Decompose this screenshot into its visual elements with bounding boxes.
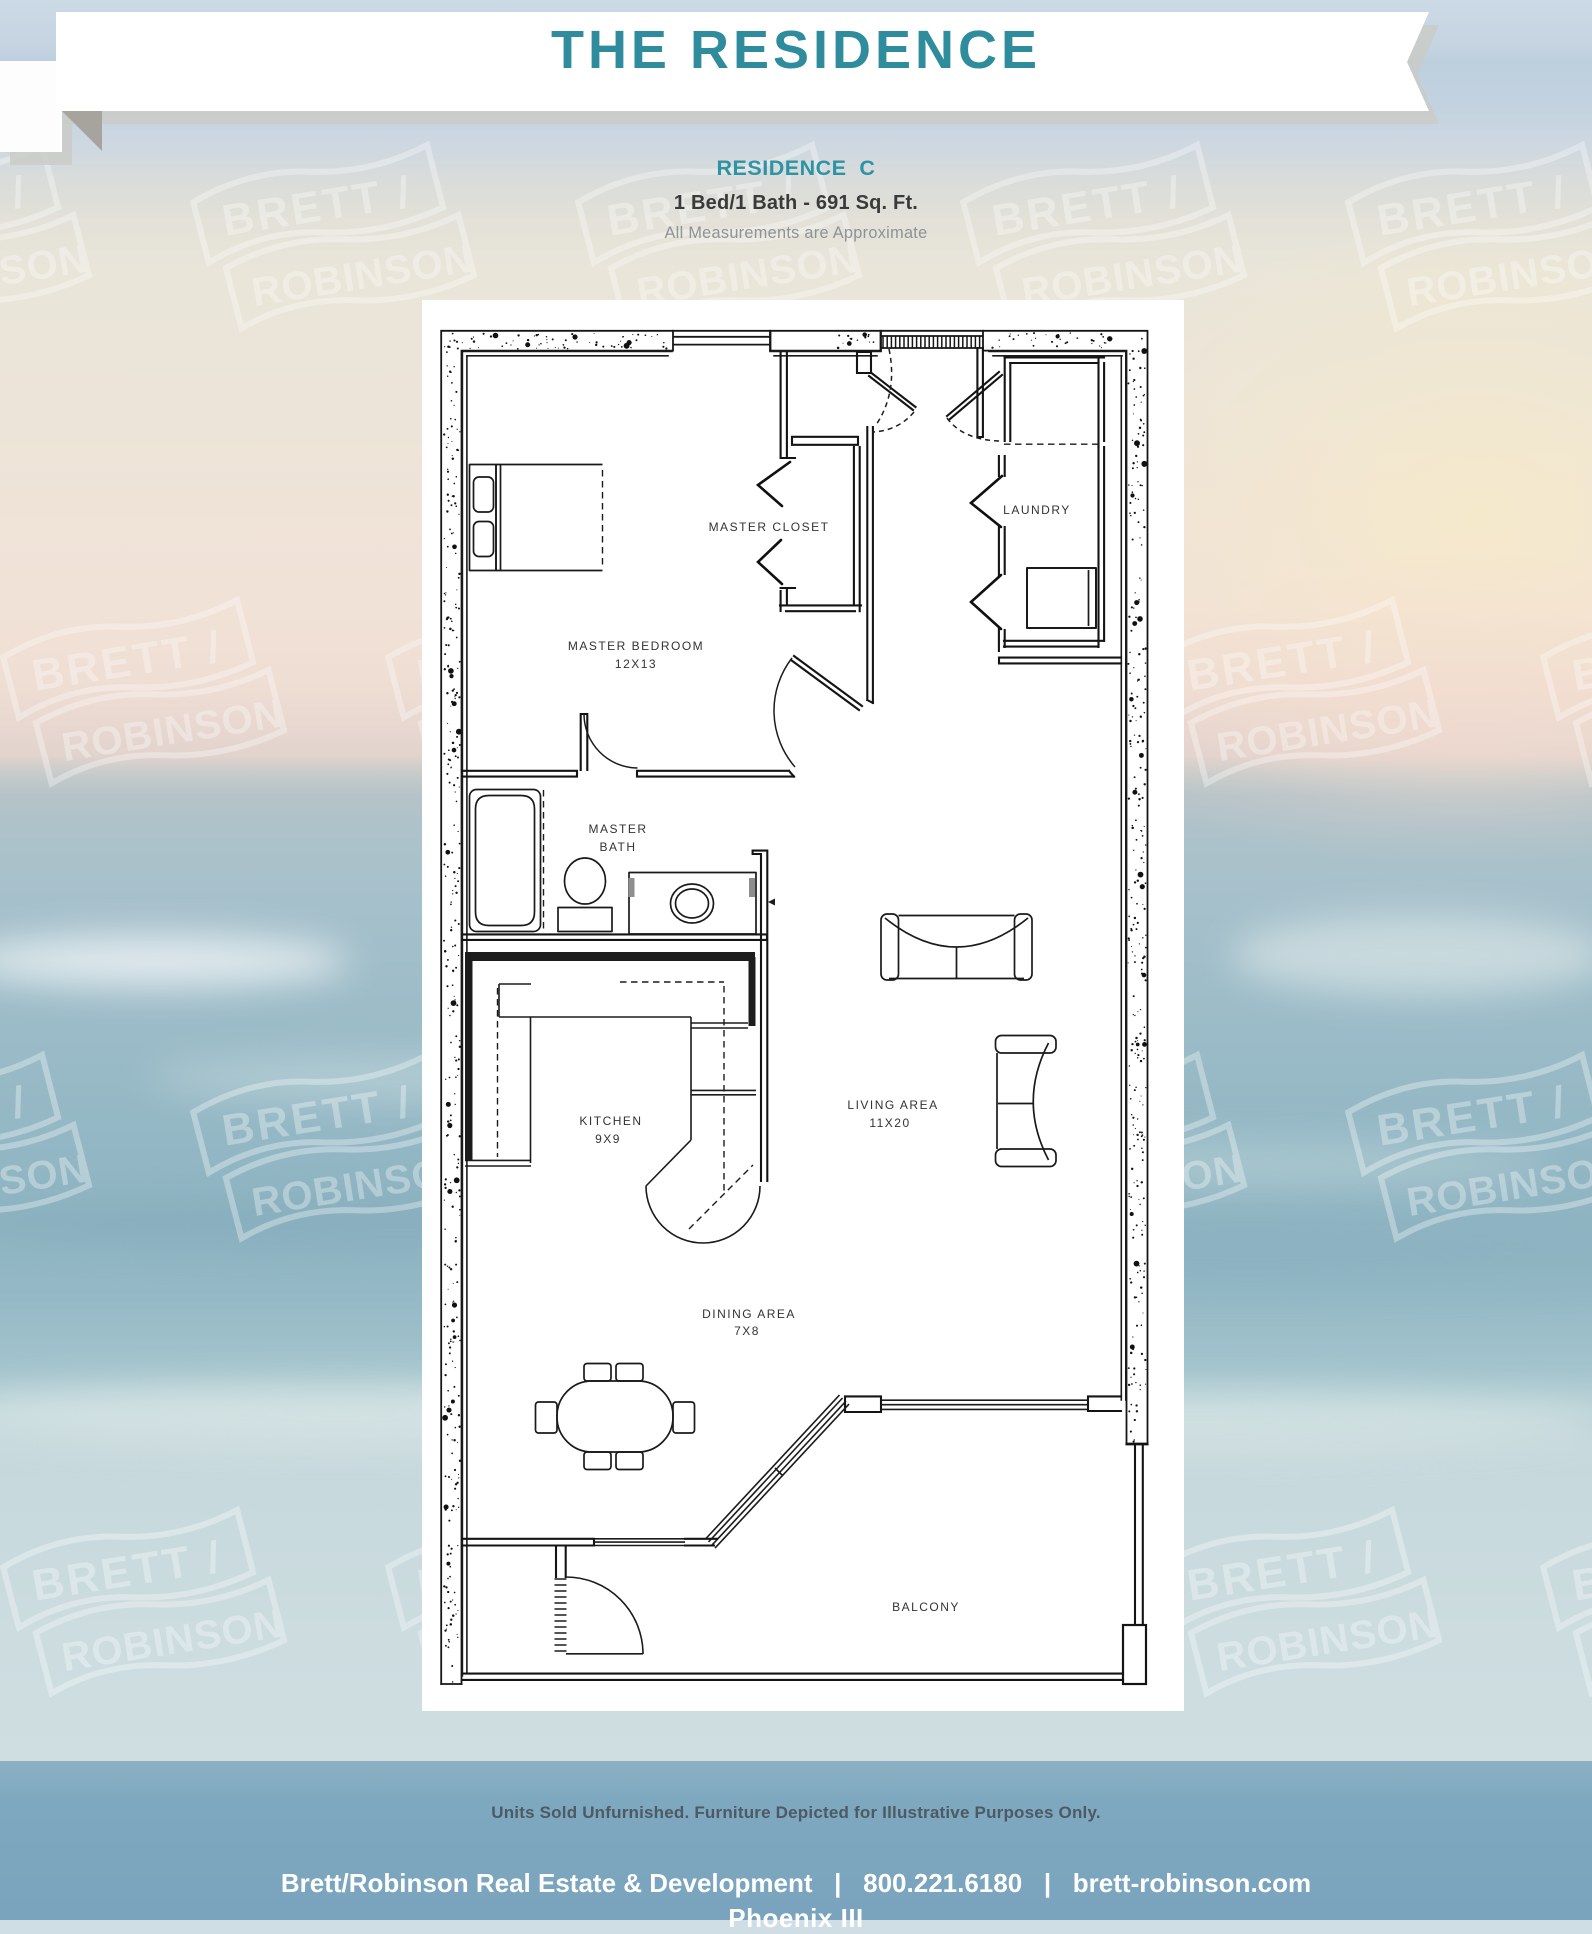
svg-text:BATH: BATH <box>599 840 636 854</box>
svg-text:DINING AREA: DINING AREA <box>702 1307 796 1321</box>
svg-text:MASTER: MASTER <box>588 822 647 836</box>
svg-text:7X8: 7X8 <box>734 1324 760 1338</box>
svg-text:KITCHEN: KITCHEN <box>579 1114 642 1128</box>
svg-text:LIVING AREA: LIVING AREA <box>847 1098 938 1112</box>
svg-text:BALCONY: BALCONY <box>892 1600 960 1614</box>
svg-text:LAUNDRY: LAUNDRY <box>1003 503 1071 517</box>
svg-text:11X20: 11X20 <box>869 1116 910 1130</box>
svg-text:MASTER BEDROOM: MASTER BEDROOM <box>568 639 704 653</box>
svg-text:MASTER CLOSET: MASTER CLOSET <box>709 520 830 534</box>
svg-text:12X13: 12X13 <box>615 657 657 671</box>
svg-text:9X9: 9X9 <box>595 1132 621 1146</box>
